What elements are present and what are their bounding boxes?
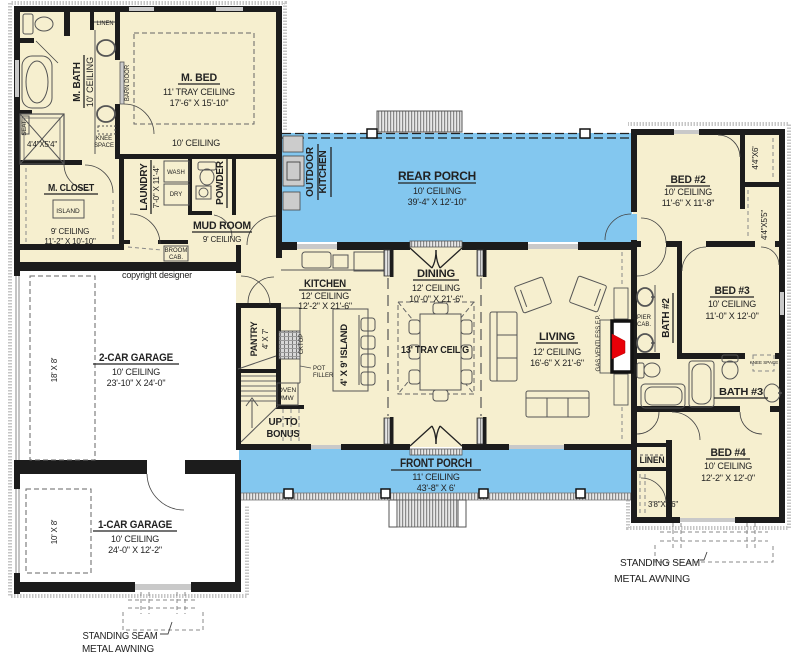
- svg-text:M. CLOSET: M. CLOSET: [48, 183, 94, 194]
- svg-text:PANTRY: PANTRY: [249, 321, 259, 356]
- svg-text:KITCHEN: KITCHEN: [304, 278, 346, 290]
- svg-text:METAL AWNING: METAL AWNING: [614, 574, 690, 585]
- svg-text:KNEE: KNEE: [96, 136, 112, 142]
- svg-text:7'-0" X 11'-4": 7'-0" X 11'-4": [152, 165, 161, 208]
- svg-text:DINING: DINING: [417, 268, 455, 280]
- svg-text:POT: POT: [313, 366, 326, 372]
- svg-text:LIVING: LIVING: [539, 331, 575, 343]
- svg-text:10' CEILING: 10' CEILING: [708, 299, 756, 309]
- svg-text:11' CEILING: 11' CEILING: [412, 472, 460, 482]
- svg-text:17'-6" X 15'-10": 17'-6" X 15'-10": [170, 98, 229, 108]
- svg-text:9' CEILING: 9' CEILING: [203, 235, 241, 244]
- svg-text:11'-0" X 12'-0": 11'-0" X 12'-0": [705, 311, 758, 321]
- svg-text:BED #4: BED #4: [711, 447, 747, 459]
- svg-text:12'-2" X 12'-0": 12'-2" X 12'-0": [701, 473, 755, 483]
- svg-text:BED #2: BED #2: [671, 174, 706, 186]
- svg-text:STANDING SEAM: STANDING SEAM: [620, 558, 700, 569]
- svg-text:CAB.: CAB.: [169, 255, 183, 261]
- svg-text:10' CEILING: 10' CEILING: [85, 57, 95, 107]
- svg-text:12' CEILING: 12' CEILING: [412, 283, 460, 293]
- svg-text:BARN DOOR: BARN DOOR: [125, 64, 131, 101]
- svg-text:4' X 9' ISLAND: 4' X 9' ISLAND: [339, 324, 350, 386]
- svg-text:10' CEILING: 10' CEILING: [112, 367, 160, 377]
- svg-text:12'-2" X 21'-6": 12'-2" X 21'-6": [298, 301, 352, 311]
- svg-text:CKTOP: CKTOP: [299, 334, 305, 355]
- svg-text:KNEE SPACE: KNEE SPACE: [750, 360, 778, 365]
- svg-text:10' CEILING: 10' CEILING: [172, 138, 220, 148]
- svg-text:copyright designer: copyright designer: [122, 270, 192, 280]
- svg-text:BED #3: BED #3: [715, 285, 750, 297]
- svg-text:KITCHEN: KITCHEN: [318, 150, 329, 193]
- svg-text:OUTDOOR: OUTDOOR: [305, 146, 316, 197]
- svg-text:FRONT PORCH: FRONT PORCH: [400, 456, 472, 470]
- svg-text:24'-0" X 12'-2": 24'-0" X 12'-2": [108, 545, 162, 555]
- svg-text:10' CEILING: 10' CEILING: [664, 187, 712, 197]
- svg-text:M. BATH: M. BATH: [72, 62, 83, 102]
- svg-text:12' CEILING: 12' CEILING: [533, 347, 581, 357]
- svg-text:CAB.: CAB.: [637, 322, 651, 328]
- svg-text:BONUS: BONUS: [267, 428, 300, 440]
- svg-text:4'4"X6': 4'4"X6': [751, 146, 760, 170]
- svg-text:BATH #3: BATH #3: [719, 386, 763, 398]
- svg-text:12' CEILING: 12' CEILING: [301, 291, 349, 301]
- svg-text:11'-2" X 10'-10": 11'-2" X 10'-10": [44, 237, 96, 246]
- svg-text:LINEN: LINEN: [97, 21, 114, 27]
- svg-text:10'-0" X 21'-6": 10'-0" X 21'-6": [409, 294, 463, 304]
- svg-text:10' CEILING: 10' CEILING: [704, 461, 752, 471]
- svg-text:23'-10" X 24'-0": 23'-10" X 24'-0": [107, 378, 166, 388]
- svg-text:MUD ROOM: MUD ROOM: [193, 220, 251, 232]
- svg-text:3'8"X5'6": 3'8"X5'6": [648, 500, 678, 509]
- svg-text:LAUNDRY: LAUNDRY: [139, 163, 150, 211]
- svg-text:4'4"X5'4": 4'4"X5'4": [27, 140, 57, 149]
- svg-text:1-CAR GARAGE: 1-CAR GARAGE: [98, 519, 172, 531]
- svg-text:STANDING SEAM: STANDING SEAM: [83, 631, 158, 642]
- svg-text:OVEN: OVEN: [278, 387, 297, 394]
- svg-text:POWDER: POWDER: [215, 160, 226, 205]
- svg-text:11' TRAY CEILING: 11' TRAY CEILING: [163, 87, 235, 97]
- svg-text:METAL AWNING: METAL AWNING: [82, 644, 154, 655]
- svg-text:10' CEILING: 10' CEILING: [111, 534, 159, 544]
- svg-text:BROOM: BROOM: [165, 248, 188, 254]
- svg-text:9' CEILING: 9' CEILING: [51, 227, 89, 236]
- svg-text:39'-4" X 12'-10": 39'-4" X 12'-10": [408, 197, 467, 207]
- svg-text:PIER: PIER: [637, 315, 652, 321]
- svg-text:M. BED: M. BED: [181, 72, 217, 84]
- svg-text:UP TO: UP TO: [269, 416, 298, 428]
- svg-text:43'-8" X 6': 43'-8" X 6': [417, 483, 456, 493]
- svg-text:2-CAR GARAGE: 2-CAR GARAGE: [99, 352, 173, 364]
- svg-text:10' CEILING: 10' CEILING: [413, 186, 461, 196]
- svg-text:FILLER: FILLER: [313, 373, 334, 379]
- svg-text:13' TRAY CEIL'G: 13' TRAY CEIL'G: [401, 344, 469, 356]
- svg-text:10' X 8': 10' X 8': [50, 519, 59, 544]
- svg-text:WASH: WASH: [167, 170, 185, 176]
- svg-text:11'-6" X 11'-8": 11'-6" X 11'-8": [662, 198, 715, 208]
- svg-text:BATH #2: BATH #2: [661, 298, 672, 338]
- svg-text:SPACE: SPACE: [94, 143, 114, 149]
- svg-text:ISLAND: ISLAND: [56, 208, 80, 215]
- svg-text:16'-6" X 21'-6": 16'-6" X 21'-6": [530, 358, 584, 368]
- svg-text:4' X 7': 4' X 7': [261, 328, 270, 349]
- svg-text:18' X 8': 18' X 8': [50, 357, 59, 382]
- svg-text:GAS VENTLESS F.P.: GAS VENTLESS F.P.: [596, 314, 602, 371]
- svg-text:DRY: DRY: [170, 192, 183, 198]
- svg-text:SEAT: SEAT: [22, 120, 28, 136]
- svg-text:/MW: /MW: [280, 395, 294, 402]
- svg-text:LINEN: LINEN: [640, 455, 665, 465]
- svg-text:4'4"X5'5": 4'4"X5'5": [760, 210, 769, 240]
- svg-text:REAR PORCH: REAR PORCH: [398, 169, 476, 183]
